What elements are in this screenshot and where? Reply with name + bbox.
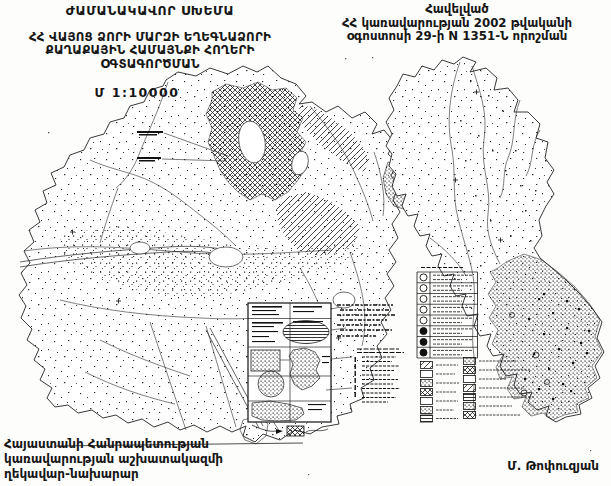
right-map-stipple-mass [488, 254, 602, 420]
right-map [386, 57, 604, 422]
office-line-1: Հայաստանի Հանրապետության [4, 437, 223, 452]
subtitle-line-3: ՕԳՏԱԳՈՐԾՄԱՆ [0, 58, 300, 71]
appendix-block: Հավելված ՀՀ կառավարության 2002 թվականի օ… [312, 3, 602, 44]
office-line-3: ղեկավար-նախարար [4, 467, 223, 482]
signature-name: Մ. Թոփուզյան [495, 459, 599, 473]
page-title: ԺԱՄԱՆԱԿԱՎՈՐ ՍԽԵՄԱ [0, 3, 300, 18]
illegible-map-label [137, 157, 161, 159]
title-block: ԺԱՄԱՆԱԿԱՎՈՐ ՍԽԵՄԱ ՀՀ ՎԱՅՈՑ ՁՈՐԻ ՄԱՐԶԻ ԵՂ… [0, 3, 300, 100]
left-map [19, 66, 427, 446]
map-scale: Մ 1:10000 [0, 85, 287, 100]
appendix-line-1: Հավելված [312, 3, 602, 17]
subtitle-line-1: ՀՀ ՎԱՅՈՑ ՁՈՐԻ ՄԱՐԶԻ ԵՂԵԳՆԱՁՈՐԻ [0, 31, 300, 44]
subtitle-line-2: ՔԱՂԱՔԱՅԻՆ ՀԱՄԱՅՆՔԻ ՀՈՂԵՐԻ [0, 44, 300, 57]
stamp-striped-blob [283, 321, 329, 344]
illegible-map-label [139, 134, 157, 136]
illegible-map-label [139, 160, 155, 162]
appendix-line-2: ՀՀ կառավարության 2002 թվականի [312, 17, 602, 31]
scanned-map-document: ԺԱՄԱՆԱԿԱՎՈՐ ՍԽԵՄԱ ՀՀ ՎԱՅՈՑ ՁՈՐԻ ՄԱՐԶԻ ԵՂ… [0, 0, 611, 486]
illegible-map-label [137, 131, 163, 133]
stamp-hatched-cell [251, 350, 280, 371]
appendix-line-3: օգոստոսի 29-ի N 1351-Ն որոշման [312, 30, 602, 44]
office-line-2: կառավարության աշխատակազմի [4, 452, 223, 467]
stamp-round-blob [258, 371, 284, 397]
signatory-office-block: Հայաստանի Հանրապետության կառավարության ա… [4, 437, 223, 482]
